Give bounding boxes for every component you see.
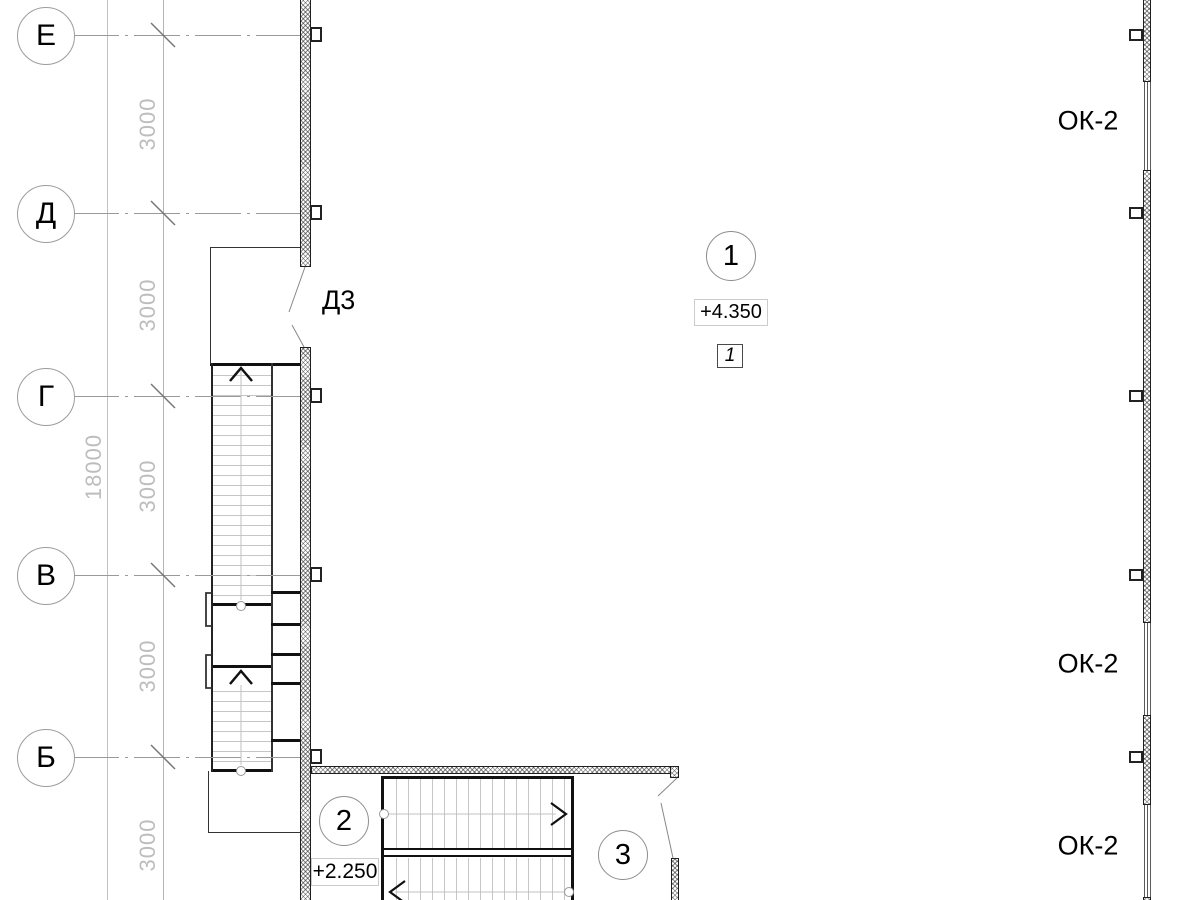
wall-right-seg-2 (1143, 170, 1151, 623)
window-ok2-1 (1144, 82, 1151, 170)
shaft-segment (271, 591, 301, 594)
stair-flight-3-steps (385, 779, 570, 848)
stair-flight-2-top-edge (212, 665, 272, 668)
marker-2-label: 2 (336, 805, 352, 838)
door-d3-leaf-2 (292, 325, 304, 347)
wall-tab-left-g (310, 388, 322, 403)
dimension-line-overall (107, 0, 108, 900)
wall-left-lower (300, 347, 311, 900)
axis-bubble-g: Г (17, 368, 75, 426)
window-label-2: ОК-2 (1058, 649, 1119, 680)
room-boundary-left (210, 247, 211, 364)
room-under-stairs (208, 771, 300, 833)
axis-bubble-d: Д (17, 185, 75, 243)
marker-bubble-1: 1 (706, 231, 756, 281)
wall-tab-right-e (1129, 29, 1143, 41)
window-label-1: ОК-2 (1058, 106, 1119, 137)
axis-bubble-b: Б (17, 729, 75, 787)
shaft-segment (271, 623, 301, 626)
axis-label-v: В (36, 559, 56, 593)
marker-1-label: 1 (723, 240, 739, 273)
axis-line-g (73, 396, 311, 397)
stair-landing-edge-upper (212, 603, 272, 606)
shaft-segment (271, 739, 301, 742)
axis-bubble-e: Е (17, 7, 75, 65)
floor-plan-canvas: Е Д Г В Б 18000 3000 3000 3000 3000 3000 (0, 0, 1200, 900)
wall-below-door (671, 858, 679, 900)
bottom-stair-left-edge (381, 776, 384, 900)
door-bottom-leaf-2 (661, 803, 673, 858)
wall-bottom-end-return (670, 766, 679, 778)
axis-label-b: Б (36, 741, 56, 775)
dim-label-overall: 18000 (81, 434, 107, 500)
stair-flight-1-steps (213, 366, 271, 602)
axis-line-v (73, 575, 311, 576)
stair-top-edge (210, 363, 301, 366)
dim-label-bay-2: 3000 (135, 279, 161, 332)
level-mark-upper: +4.350 (694, 299, 768, 326)
door-bottom-leaf-1 (658, 778, 677, 796)
door-d3-leaf-1 (289, 267, 305, 312)
dim-label-bay-3: 3000 (135, 460, 161, 513)
dim-label-bay-4: 3000 (135, 640, 161, 693)
bottom-stair-divider-1 (382, 848, 572, 850)
shaft-segment (271, 653, 301, 656)
dimension-line-bays (163, 0, 164, 900)
wall-tab-right-g (1129, 390, 1143, 402)
level-mark-lower: +2.250 (311, 858, 379, 886)
door-d3-label: Д3 (322, 285, 355, 316)
bottom-stair-right-edge (571, 776, 574, 900)
stair-left-edge (211, 363, 213, 772)
wall-tab-left-e (310, 27, 322, 42)
axis-label-d: Д (36, 197, 56, 231)
window-label-3: ОК-2 (1058, 831, 1119, 862)
bottom-stair-divider-2 (382, 855, 572, 857)
stair-flight-2-steps (213, 682, 271, 768)
window-ok2-2 (1144, 623, 1151, 715)
axis-label-g: Г (38, 380, 54, 414)
window-ok2-3 (1144, 805, 1151, 897)
dim-label-bay-1: 3000 (135, 98, 161, 151)
wall-tab-left-d (310, 205, 322, 220)
axis-line-d (73, 213, 311, 214)
wall-tab-right-v (1129, 569, 1143, 581)
stair-stringer-edge (271, 363, 273, 772)
wall-bottom-horizontal (311, 766, 679, 774)
axis-label-e: Е (36, 19, 56, 53)
wall-tab-right-d (1129, 207, 1143, 219)
marker-bubble-3: 3 (598, 830, 648, 880)
wall-right-seg-1 (1143, 0, 1151, 82)
axis-line-b (73, 757, 311, 758)
marker-bubble-2: 2 (319, 796, 369, 846)
marker-3-label: 3 (615, 839, 631, 872)
level-upper-value: +4.350 (700, 301, 762, 324)
wall-right-seg-3 (1143, 715, 1151, 805)
shaft-segment (271, 682, 301, 685)
axis-bubble-v: В (17, 547, 75, 605)
node-marker-label: 1 (725, 345, 736, 367)
wall-tab-right-b (1129, 751, 1143, 763)
dim-label-bay-5: 3000 (135, 819, 161, 872)
wall-tab-left-v (310, 567, 322, 582)
linework-overlay (0, 0, 1200, 900)
bottom-stair-top-edge (382, 776, 573, 779)
stair-flight-4-steps (385, 858, 570, 900)
room-boundary-top (210, 247, 301, 248)
level-lower-value: +2.250 (313, 860, 378, 884)
node-marker-box: 1 (717, 344, 743, 368)
axis-line-e (73, 35, 311, 36)
wall-tab-left-b (310, 749, 322, 764)
